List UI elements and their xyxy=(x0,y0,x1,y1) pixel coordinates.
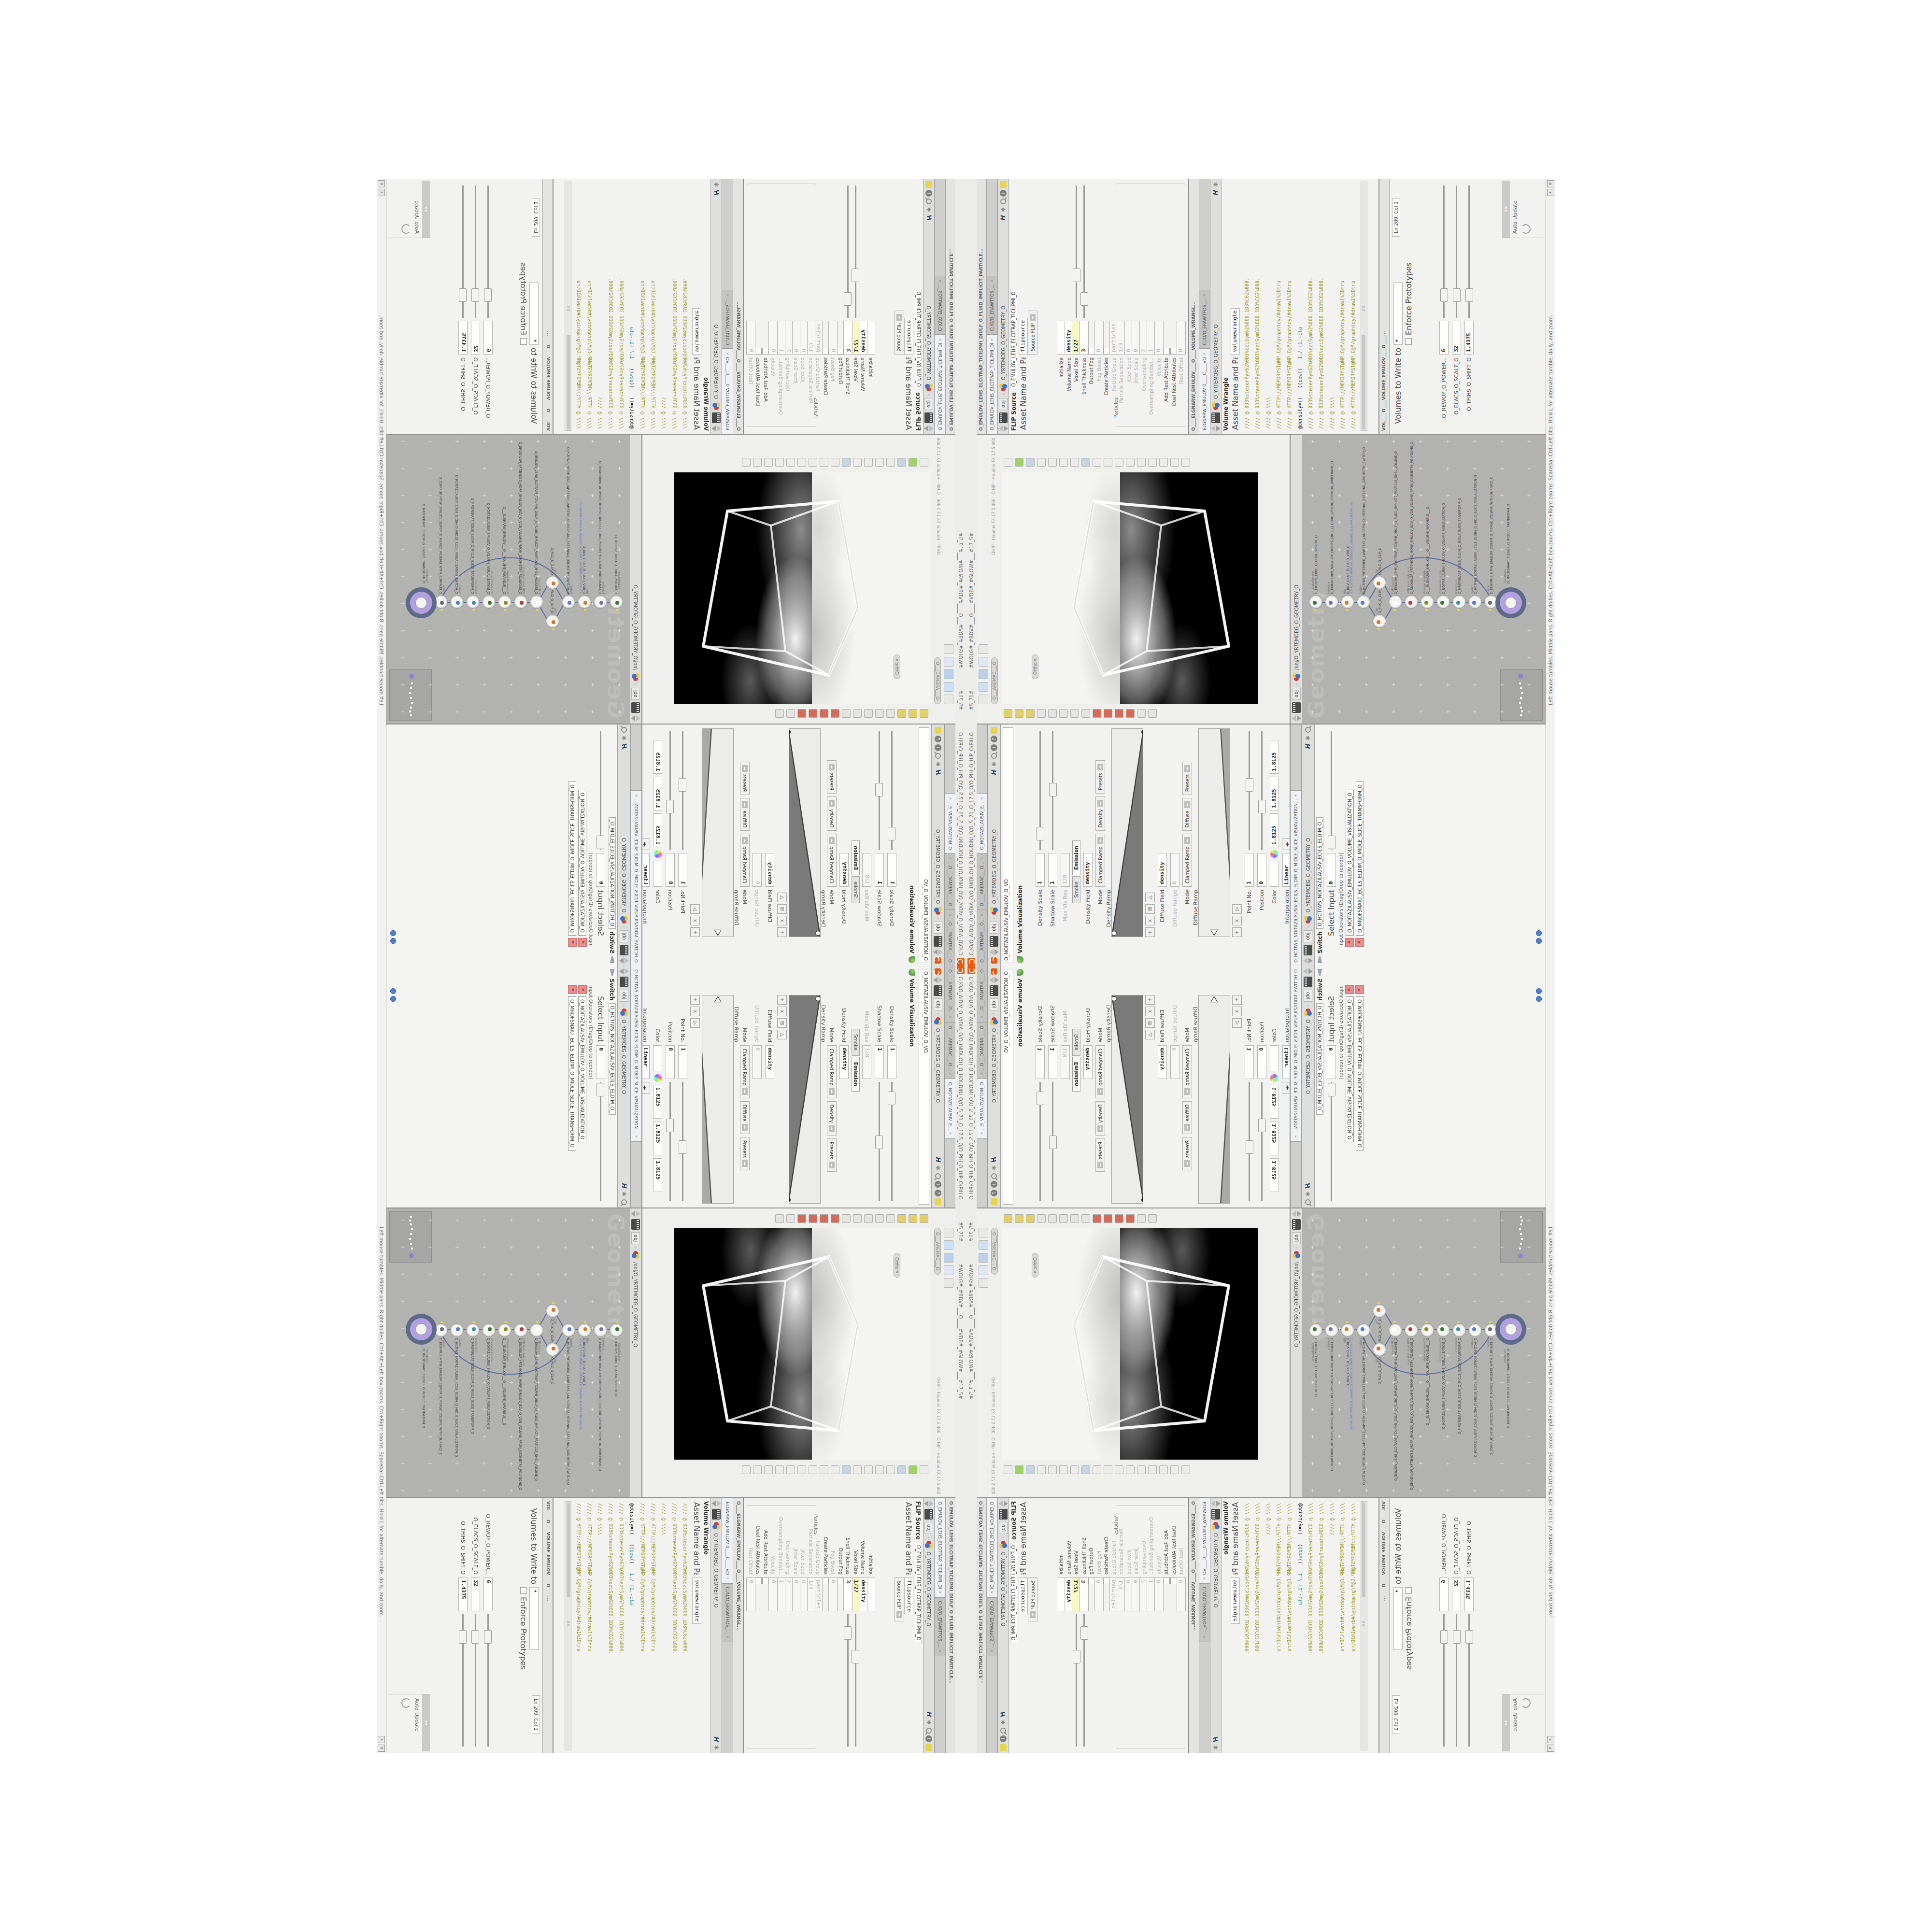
restore-icon[interactable]: o xyxy=(378,1745,385,1752)
display-option-icon[interactable] xyxy=(909,709,917,718)
color-component-value[interactable]: 1.8125 xyxy=(653,1158,663,1192)
param-slider[interactable] xyxy=(855,185,856,318)
fog-boost-value[interactable]: 0 xyxy=(828,1577,838,1611)
info-icon[interactable]: i xyxy=(1000,1735,1007,1742)
input-operator-item[interactable]: ✕ O_NOITAZILAUSIV_EMULOV_O_VOLUME_VISUAL… xyxy=(578,728,587,947)
snap-magnet-icon[interactable] xyxy=(1093,709,1101,718)
context-badge[interactable]: obj xyxy=(990,998,998,1010)
create-particles-checkbox[interactable] xyxy=(1103,348,1110,355)
remove-item-icon[interactable]: ✕ xyxy=(568,938,577,947)
input-operator-item[interactable]: ✕ O_MROFSNART_ECILS_ELDIM_O_MIDLE_SLICE_… xyxy=(568,728,577,947)
flip-window-title[interactable]: O_EMULOV_LEHS_ELCITRAP_TICILPMI_DIULF_O_… xyxy=(945,1498,955,1753)
vex-code-editor[interactable]: //// @ 0D3%steserPym62%0D3%eziSym62%000.… xyxy=(1240,179,1361,434)
tab-smoke[interactable]: Smoke xyxy=(1072,876,1080,903)
remove-item-icon[interactable]: ✕ xyxy=(578,938,587,947)
network-node[interactable] xyxy=(594,1324,607,1336)
max-vis-res-value[interactable]: 128 xyxy=(863,1045,872,1079)
source-flip-dropdown[interactable]: Source FLIP◂▸ xyxy=(895,311,904,355)
display-option-icon[interactable] xyxy=(1081,1214,1090,1223)
create-particles-checkbox[interactable] xyxy=(822,348,829,355)
network-node[interactable] xyxy=(546,615,559,627)
density-scale-value[interactable]: 1 xyxy=(1036,1045,1045,1079)
diffuse-field-value[interactable]: density xyxy=(1158,1045,1167,1079)
gear-icon[interactable]: ✱ xyxy=(621,735,627,741)
param-slider[interactable] xyxy=(670,1082,671,1201)
network-node[interactable] xyxy=(1357,1324,1370,1336)
display-option-icon[interactable] xyxy=(875,709,884,718)
slider-value[interactable]: 1.4375 xyxy=(459,321,468,355)
snap-magnet-icon[interactable] xyxy=(1093,1214,1101,1223)
display-option-icon[interactable] xyxy=(842,1214,851,1223)
display-option-icon[interactable] xyxy=(853,1214,862,1223)
wrangle-tab-2[interactable]: C:/O/O_ERAWTFOS_...✕ xyxy=(722,290,733,349)
color-component-value[interactable]: 1.8125 xyxy=(1270,1122,1279,1155)
density-scale-value[interactable]: 1 xyxy=(888,853,897,887)
network-node[interactable] xyxy=(1453,1324,1465,1336)
snap-magnet-icon[interactable] xyxy=(831,709,839,718)
asset-path-value[interactable]: volumewrangle xyxy=(693,308,702,355)
network-node[interactable] xyxy=(530,1324,543,1336)
camera-pill[interactable]: O___AREMAC___O xyxy=(991,1228,998,1275)
snapshot-icon[interactable] xyxy=(631,1219,640,1230)
source-flip-dropdown[interactable]: Source FLIP◂▸ xyxy=(1028,311,1037,355)
snapshot-icon[interactable] xyxy=(1292,702,1301,713)
select-tool-icon[interactable] xyxy=(764,1465,773,1474)
param-slider[interactable] xyxy=(1468,185,1470,318)
sticky-note-icon[interactable] xyxy=(1000,181,1007,188)
ramp-button[interactable]: △ xyxy=(1145,893,1155,902)
display-option-icon[interactable] xyxy=(909,1214,917,1223)
param-slider[interactable] xyxy=(1249,1082,1250,1201)
display-option-icon[interactable] xyxy=(1015,1214,1023,1223)
output-fog-checkbox[interactable] xyxy=(1088,1577,1095,1584)
density-field-value[interactable]: density xyxy=(840,853,849,887)
param-slider[interactable] xyxy=(475,1614,477,1747)
color-component-value[interactable]: 1.8125 xyxy=(653,813,663,847)
point-no--value[interactable]: 1 xyxy=(679,853,688,887)
ramp-button[interactable]: x xyxy=(1232,1007,1242,1016)
select-tool-icon[interactable] xyxy=(920,1465,928,1474)
network-node[interactable] xyxy=(594,596,607,608)
path-node-label[interactable]: O_YRTEMOEG_O_GEOMETRY_O xyxy=(936,1028,941,1103)
mode-dropdown[interactable]: Density◂▸ xyxy=(1095,796,1105,831)
select-input-value[interactable]: 0 xyxy=(1327,1045,1336,1079)
viewport-tool-icon[interactable] xyxy=(944,1265,953,1275)
network-path-label[interactable]: /obj/O_YRTEMOEG_O_GEOMETRY_O xyxy=(1294,1262,1299,1347)
input-operator-name[interactable]: O_NOITAZILAUSIV_EMULOV_O_VOLUME_VISUALIZ… xyxy=(579,996,587,1142)
source-flip-dropdown[interactable]: Source FLIP◂▸ xyxy=(1028,1577,1037,1621)
context-badge[interactable]: obj xyxy=(999,398,1008,410)
auto-update-header[interactable]: ◂ ▸ xyxy=(1502,181,1510,238)
network-node[interactable] xyxy=(1421,1324,1434,1336)
houdini-h-icon[interactable]: H xyxy=(935,769,941,776)
viewport-tool-icon[interactable] xyxy=(979,1278,988,1288)
slider-value[interactable]: 1.4375 xyxy=(459,1577,468,1611)
network-node[interactable] xyxy=(1373,1305,1386,1317)
auto-update-header[interactable]: ◂ ▸ xyxy=(422,1694,430,1751)
path-node-label[interactable]: O_YRTEMOEG_O_GEOMETRY_O xyxy=(1213,325,1219,399)
diffuse-range-value[interactable]: 0 xyxy=(1170,853,1179,887)
ramp-button[interactable]: + xyxy=(777,927,787,937)
flip-tab-2[interactable]: C:/O/O_ERAWTFOS_...✕ xyxy=(987,276,997,335)
param-slider[interactable] xyxy=(463,1614,464,1747)
display-option-icon[interactable] xyxy=(1048,709,1057,718)
remove-item-icon[interactable]: ✕ xyxy=(578,985,587,994)
select-tool-icon[interactable] xyxy=(775,458,784,467)
flip-name-field[interactable]: O_EMULOV_LEHS_ELCITRAP_TICILPMI_D xyxy=(915,289,922,389)
network-node[interactable] xyxy=(1437,1324,1449,1336)
projection-pill[interactable]: Ortho ▾ xyxy=(1032,1253,1038,1278)
gear-icon[interactable]: ✱ xyxy=(1000,1719,1007,1726)
viewport-tool-icon[interactable] xyxy=(944,1278,953,1288)
asset-path-value[interactable]: flipsource xyxy=(905,318,914,355)
network-canvas[interactable]: Geometry .w{fill:none;stroke:#5b6e9e;str… xyxy=(386,435,630,724)
point-no--value[interactable]: 1 xyxy=(679,1045,688,1079)
mode-dropdown[interactable]: Diffuse◂▸ xyxy=(1182,798,1192,831)
density-scale-value[interactable]: 1 xyxy=(1036,853,1045,887)
restore-icon[interactable]: o xyxy=(1547,180,1554,187)
remove-item-icon[interactable]: ✕ xyxy=(1345,985,1354,994)
path-node-label[interactable]: O_YRTEMOEG_O_GEOMETRY_O xyxy=(992,829,997,904)
param-slider[interactable] xyxy=(1249,731,1250,850)
display-option-icon[interactable] xyxy=(1004,1214,1012,1223)
mode-dropdown[interactable]: Clamped Ramp◂▸ xyxy=(740,834,750,887)
slider-value[interactable]: 6 xyxy=(484,1577,493,1611)
select-tool-icon[interactable] xyxy=(842,1465,851,1474)
snapshot-icon[interactable] xyxy=(712,1509,721,1520)
color-wheel-icon[interactable] xyxy=(1270,850,1278,858)
info-icon[interactable]: i xyxy=(1000,190,1007,197)
param-slider[interactable] xyxy=(488,1614,489,1747)
network-node[interactable] xyxy=(467,1324,479,1336)
point-no--value[interactable]: 1 xyxy=(1245,1045,1254,1079)
network-node[interactable] xyxy=(1437,596,1449,608)
input-operator-name[interactable]: O_MROFSNART_ECILS_ELDIM_O_MIDLE_SLICE_TR… xyxy=(1356,996,1364,1151)
textport-window-title[interactable]: VOL____O____VOLUME_EMULOV____O____... xyxy=(1379,179,1390,434)
sticky-note-icon[interactable] xyxy=(935,1198,941,1205)
close-icon[interactable]: x xyxy=(378,1736,385,1743)
ramp-button[interactable]: ▷ xyxy=(690,904,700,914)
context-badge[interactable]: obj xyxy=(1304,930,1312,942)
display-option-icon[interactable] xyxy=(1070,1214,1079,1223)
network-node[interactable] xyxy=(451,1324,463,1336)
remove-item-icon[interactable]: ✕ xyxy=(1345,938,1354,947)
switch-name-field[interactable]: O_HCTIWS_NOITAZILAUSIV_ECILS_ELDIM_O_ xyxy=(609,1003,616,1115)
param-slider[interactable] xyxy=(847,1614,849,1747)
snap-magnet-icon[interactable] xyxy=(797,709,806,718)
auto-update-header[interactable]: ◂ ▸ xyxy=(1502,1694,1510,1751)
select-input-value[interactable]: 0 xyxy=(597,1045,606,1079)
sticky-note-icon[interactable] xyxy=(925,1744,932,1751)
enforce-prototypes-checkbox[interactable] xyxy=(520,338,527,345)
path-node-label[interactable]: O_YRTEMOEG_O_GEOMETRY_O xyxy=(936,829,941,904)
code-hscrollbar[interactable]: ⠿⠿ xyxy=(565,182,571,431)
scene-viewport-pane[interactable]: O___AREMAC___O OH!P - Houdini FX 17.5.46… xyxy=(977,435,1291,724)
projection-pill[interactable]: Ortho ▾ xyxy=(1032,654,1038,679)
context-badge[interactable]: obj xyxy=(620,930,628,942)
network-node[interactable] xyxy=(1469,596,1481,608)
param-slider[interactable] xyxy=(1052,1082,1053,1201)
asset-path-value[interactable]: volumewrangle xyxy=(693,1577,702,1624)
network-canvas[interactable]: Geometry .w{fill:none;stroke:#5b6e9e;str… xyxy=(386,1208,630,1497)
ramp-button[interactable]: + xyxy=(1232,995,1242,1005)
auto-update-widget[interactable]: ◂ ▸ Auto Update xyxy=(1502,1694,1544,1751)
viz-name-field[interactable]: O_NOITAZILAUSIV_EMULOV_O_VO xyxy=(919,727,929,963)
auto-update-header[interactable]: ◂ ▸ xyxy=(422,181,430,238)
density-field-value[interactable]: density xyxy=(840,1045,849,1079)
wrangle-window-title[interactable]: O____ELGNARW_EMULOV____O____VOLUME_WRANG… xyxy=(1189,1498,1199,1753)
select-tool-icon[interactable] xyxy=(1048,458,1057,467)
wrangle-tab-1[interactable]: ELGNARW_EMULOV 0____C____VO✕ xyxy=(722,349,733,434)
select-tool-icon[interactable] xyxy=(1070,1465,1079,1474)
ramp-button[interactable]: △ xyxy=(777,893,787,902)
select-input-slider[interactable] xyxy=(1331,731,1332,850)
input-operator-item[interactable]: ✕ O_MROFSNART_ECILS_ELDIM_O_MIDLE_SLICE_… xyxy=(1355,728,1364,947)
ramp-button[interactable]: + xyxy=(1232,927,1242,937)
input-operator-item[interactable]: ✕ O_MROFSNART_ECILS_ELDIM_O_MIDLE_SLICE_… xyxy=(1355,985,1364,1204)
pane-tab[interactable]: O____ARTNAM___O...✕ xyxy=(977,966,987,1023)
select-tool-icon[interactable] xyxy=(831,1465,839,1474)
network-node[interactable] xyxy=(1405,596,1418,608)
context-badge[interactable]: obj xyxy=(1304,990,1312,1002)
projection-pill[interactable]: Ortho ▾ xyxy=(894,1253,900,1278)
param-slider[interactable] xyxy=(1076,185,1077,318)
close-icon[interactable]: x xyxy=(1547,1736,1554,1743)
select-tool-icon[interactable] xyxy=(1048,1465,1057,1474)
param-slider[interactable] xyxy=(463,185,464,318)
select-tool-icon[interactable] xyxy=(1148,1465,1157,1474)
network-node[interactable] xyxy=(483,596,495,608)
select-tool-icon[interactable] xyxy=(775,1465,784,1474)
code-hscrollbar[interactable]: ⠿⠿ xyxy=(1361,182,1367,431)
network-node[interactable] xyxy=(1325,1324,1338,1336)
houdini-h-icon[interactable]: H xyxy=(621,743,627,750)
switch-pane-tab[interactable]: O_HCTIWS_NOITAZILAUSIV_ECILS_ELDIM_O_MID… xyxy=(1291,790,1301,966)
param-slider[interactable] xyxy=(1443,185,1445,318)
color-component-value[interactable]: 1.8125 xyxy=(1270,1085,1279,1119)
mode-dropdown[interactable]: Presets◂▸ xyxy=(1182,762,1192,795)
vex-code-editor[interactable]: //// @ 0D3%steserPym62%0D3%eziSym62%000.… xyxy=(571,1498,692,1753)
network-node[interactable] xyxy=(610,596,623,608)
asset-path-value[interactable]: volumewrangle xyxy=(1231,1577,1240,1624)
textport-window-title[interactable]: VOL____O____VOLUME_EMULOV____O____... xyxy=(542,1498,553,1753)
pane-tab[interactable]: O____AREMAC___O...✕ xyxy=(977,1023,987,1079)
viewport-tool-icon[interactable] xyxy=(979,1240,988,1250)
mode-dropdown[interactable]: Presets◂▸ xyxy=(1182,1137,1192,1170)
camera-pill[interactable]: O___AREMAC___O xyxy=(934,1228,941,1275)
diffuse-ramp-widget[interactable] xyxy=(1198,728,1230,937)
input-operator-name[interactable]: O_NOITAZILAUSIV_EMULOV_O_VOLUME_VISUALIZ… xyxy=(1346,790,1354,936)
snap-magnet-icon[interactable] xyxy=(1126,709,1135,718)
volumes-value[interactable]: * xyxy=(1393,282,1403,345)
textport-window-title[interactable]: VOL____O____VOLUME_EMULOV____O____... xyxy=(1379,1498,1390,1753)
select-tool-icon[interactable] xyxy=(742,458,751,467)
viewport-tool-icon[interactable] xyxy=(944,682,953,692)
selected-node[interactable] xyxy=(1495,587,1526,618)
ramp-button[interactable]: + xyxy=(690,927,700,937)
help-icon[interactable]: ? xyxy=(935,736,941,742)
param-slider[interactable] xyxy=(475,185,477,318)
select-input-value[interactable]: 0 xyxy=(597,853,606,887)
pane-tab[interactable]: O____ARTNAM___O...✕ xyxy=(945,966,955,1023)
param-slider[interactable] xyxy=(855,1614,856,1747)
path-node-label[interactable]: O_YRTEMOEG_O_GEOMETRY_O xyxy=(1001,1552,1006,1626)
restore-icon[interactable]: o xyxy=(378,180,385,187)
houdini-h-icon[interactable]: H xyxy=(925,215,932,222)
mode-dropdown[interactable]: Presets◂▸ xyxy=(827,760,837,794)
pane-tab[interactable]: O____ARTNAM___O...✕ xyxy=(945,909,955,966)
network-node[interactable] xyxy=(498,1324,511,1336)
selected-node[interactable] xyxy=(1495,1314,1526,1345)
flip-tab-1[interactable]: O_EMULOV_LEHS_ELCITRAP_TICILPMI_DI✕ xyxy=(935,334,945,434)
input-operator-name[interactable]: O_NOITAZILAUSIV_EMULOV_O_VOLUME_VISUALIZ… xyxy=(579,790,587,936)
select-input-slider[interactable] xyxy=(1331,1082,1332,1201)
select-tool-icon[interactable] xyxy=(1059,458,1068,467)
select-tool-icon[interactable] xyxy=(742,1465,751,1474)
select-input-slider[interactable] xyxy=(600,731,602,850)
snapshot-icon[interactable] xyxy=(1211,412,1220,423)
network-node[interactable] xyxy=(1341,1324,1354,1336)
magnifier-icon[interactable] xyxy=(1000,199,1006,204)
volumes-value[interactable]: * xyxy=(1393,1587,1403,1650)
network-node[interactable] xyxy=(546,1343,559,1356)
houdini-h-icon[interactable]: H xyxy=(621,1182,627,1189)
wrangle-tab-1[interactable]: ELGNARW_EMULOV 0____C____VO✕ xyxy=(1199,1498,1210,1584)
tab-smoke[interactable]: Smoke xyxy=(852,876,860,903)
snapshot-icon[interactable] xyxy=(1304,945,1312,955)
output-fog-checkbox[interactable] xyxy=(837,1577,844,1584)
display-option-icon[interactable] xyxy=(853,709,862,718)
select-tool-icon[interactable] xyxy=(753,458,762,467)
pane-tab[interactable]: O_NOITAZILAUSIV_E...✕ xyxy=(977,793,987,853)
select-input-slider[interactable] xyxy=(600,1082,602,1201)
select-tool-icon[interactable] xyxy=(797,458,806,467)
wrangle-tab-1[interactable]: ELGNARW_EMULOV 0____C____VO✕ xyxy=(722,1498,733,1584)
path-node-label[interactable]: O_YRTEMOEG_O_GEOMETRY_O xyxy=(1001,306,1006,380)
snap-magnet-icon[interactable] xyxy=(1115,709,1123,718)
context-badge[interactable]: obj xyxy=(934,998,942,1010)
network-path-label[interactable]: /obj/O_YRTEMOEG_O_GEOMETRY_O xyxy=(633,585,639,670)
color-wheel-icon[interactable] xyxy=(654,850,662,858)
display-option-icon[interactable] xyxy=(1137,1214,1146,1223)
snapshot-icon[interactable] xyxy=(999,412,1008,423)
diffuse-ramp-widget[interactable] xyxy=(702,728,734,937)
slider-value[interactable]: 32 xyxy=(471,321,481,355)
gear-icon[interactable]: ✱ xyxy=(925,1719,932,1726)
select-tool-icon[interactable] xyxy=(1070,458,1079,467)
select-tool-icon[interactable] xyxy=(1137,1465,1146,1474)
magnifier-icon[interactable] xyxy=(935,753,941,759)
select-tool-icon[interactable] xyxy=(1037,458,1046,467)
density-field-value[interactable]: density xyxy=(1083,853,1093,887)
param-slider[interactable] xyxy=(1076,1614,1077,1747)
wrangle-tab-2[interactable]: C:/O/O_ERAWTFOS_...✕ xyxy=(1199,290,1210,349)
select-tool-icon[interactable] xyxy=(1170,1465,1179,1474)
select-tool-icon[interactable] xyxy=(920,458,928,467)
houdini-h-icon[interactable]: H xyxy=(925,1710,932,1717)
param-slider[interactable] xyxy=(1456,185,1457,318)
display-option-icon[interactable] xyxy=(886,1214,895,1223)
slider-value[interactable]: 6 xyxy=(1439,1577,1449,1611)
fog-boost-value[interactable]: 0 xyxy=(1094,1577,1104,1611)
network-node[interactable] xyxy=(546,576,559,589)
path-node-label[interactable]: O_YRTEMOEG_O_GEOMETRY_O xyxy=(622,1020,627,1094)
mode-dropdown[interactable]: Diffuse◂▸ xyxy=(1182,1101,1192,1134)
enforce-prototypes-checkbox[interactable] xyxy=(520,1587,527,1594)
param-slider[interactable] xyxy=(682,731,684,850)
pane-tab[interactable]: O_NOITAZILAUSIV_E...✕ xyxy=(945,1079,955,1139)
mode-dropdown[interactable]: Density◂▸ xyxy=(827,796,837,831)
select-tool-icon[interactable] xyxy=(809,458,817,467)
select-tool-icon[interactable] xyxy=(875,1465,884,1474)
select-tool-icon[interactable] xyxy=(753,1465,762,1474)
render-view[interactable]: Ortho ▾ xyxy=(1002,1228,1258,1460)
select-tool-icon[interactable] xyxy=(1148,458,1157,467)
ramp-button[interactable]: x xyxy=(1145,916,1155,925)
select-tool-icon[interactable] xyxy=(909,1465,917,1474)
color-swatch[interactable] xyxy=(653,1045,663,1071)
display-option-icon[interactable] xyxy=(897,1214,906,1223)
snapshot-icon[interactable] xyxy=(990,985,998,996)
selected-node[interactable] xyxy=(406,587,437,618)
snap-magnet-icon[interactable] xyxy=(1104,1214,1112,1223)
ramp-button[interactable]: + xyxy=(1145,995,1155,1005)
viewport-tool-icon[interactable] xyxy=(979,682,988,692)
mode-dropdown[interactable]: Presets◂▸ xyxy=(740,762,750,795)
help-icon[interactable]: ? xyxy=(991,736,997,742)
mode-dropdown[interactable]: Clamped Ramp◂▸ xyxy=(1182,834,1192,887)
magnifier-icon[interactable] xyxy=(926,1728,932,1733)
slider-value[interactable]: 32 xyxy=(471,1577,481,1611)
select-tool-icon[interactable] xyxy=(1159,458,1168,467)
input-operator-name[interactable]: O_NOITAZILAUSIV_EMULOV_O_VOLUME_VISUALIZ… xyxy=(1346,996,1354,1142)
slider-value[interactable]: 1.4375 xyxy=(1464,1577,1474,1611)
color-wheel-icon[interactable] xyxy=(654,1074,662,1082)
param-slider[interactable] xyxy=(879,731,881,850)
asset-path-value[interactable]: flipsource xyxy=(905,1577,914,1614)
gear-icon[interactable]: ✱ xyxy=(1212,1744,1219,1751)
mode-dropdown[interactable]: Presets◂▸ xyxy=(827,1138,837,1172)
houdini-h-icon[interactable]: H xyxy=(935,1156,941,1163)
ramp-button[interactable]: + xyxy=(1145,927,1155,937)
select-tool-icon[interactable] xyxy=(842,458,851,467)
network-node[interactable] xyxy=(1309,596,1322,608)
select-tool-icon[interactable] xyxy=(909,458,917,467)
select-tool-icon[interactable] xyxy=(1093,1465,1101,1474)
color-swatch[interactable] xyxy=(1270,861,1279,887)
viewport-tool-icon[interactable] xyxy=(979,644,988,654)
create-particles-checkbox[interactable] xyxy=(822,1577,829,1584)
context-badge[interactable]: obj xyxy=(999,1522,1008,1534)
display-option-icon[interactable] xyxy=(842,709,851,718)
network-node[interactable] xyxy=(578,1324,591,1336)
context-badge[interactable]: obj xyxy=(1292,688,1301,700)
projection-pill[interactable]: Ortho ▾ xyxy=(894,654,900,679)
ramp-button[interactable]: △ xyxy=(1145,1030,1155,1039)
viewport-tool-icon[interactable] xyxy=(979,695,988,704)
mode-dropdown[interactable]: Clamped Ramp◂▸ xyxy=(827,834,837,887)
viewport-tool-icon[interactable] xyxy=(979,1253,988,1263)
input-operator-item[interactable]: ✕ O_NOITAZILAUSIV_EMULOV_O_VOLUME_VISUAL… xyxy=(1345,985,1354,1204)
houdini-h-icon[interactable]: H xyxy=(713,190,720,197)
wrangle-window-title[interactable]: O____ELGNARW_EMULOV____O____VOLUME_WRANG… xyxy=(733,179,743,434)
network-node[interactable] xyxy=(1405,1324,1418,1336)
select-tool-icon[interactable] xyxy=(1170,458,1179,467)
network-minimap[interactable] xyxy=(1500,669,1543,721)
diffuse-field-value[interactable]: density xyxy=(766,1045,775,1079)
color-swatch[interactable] xyxy=(1270,1045,1279,1071)
snapshot-icon[interactable] xyxy=(1211,1509,1220,1520)
